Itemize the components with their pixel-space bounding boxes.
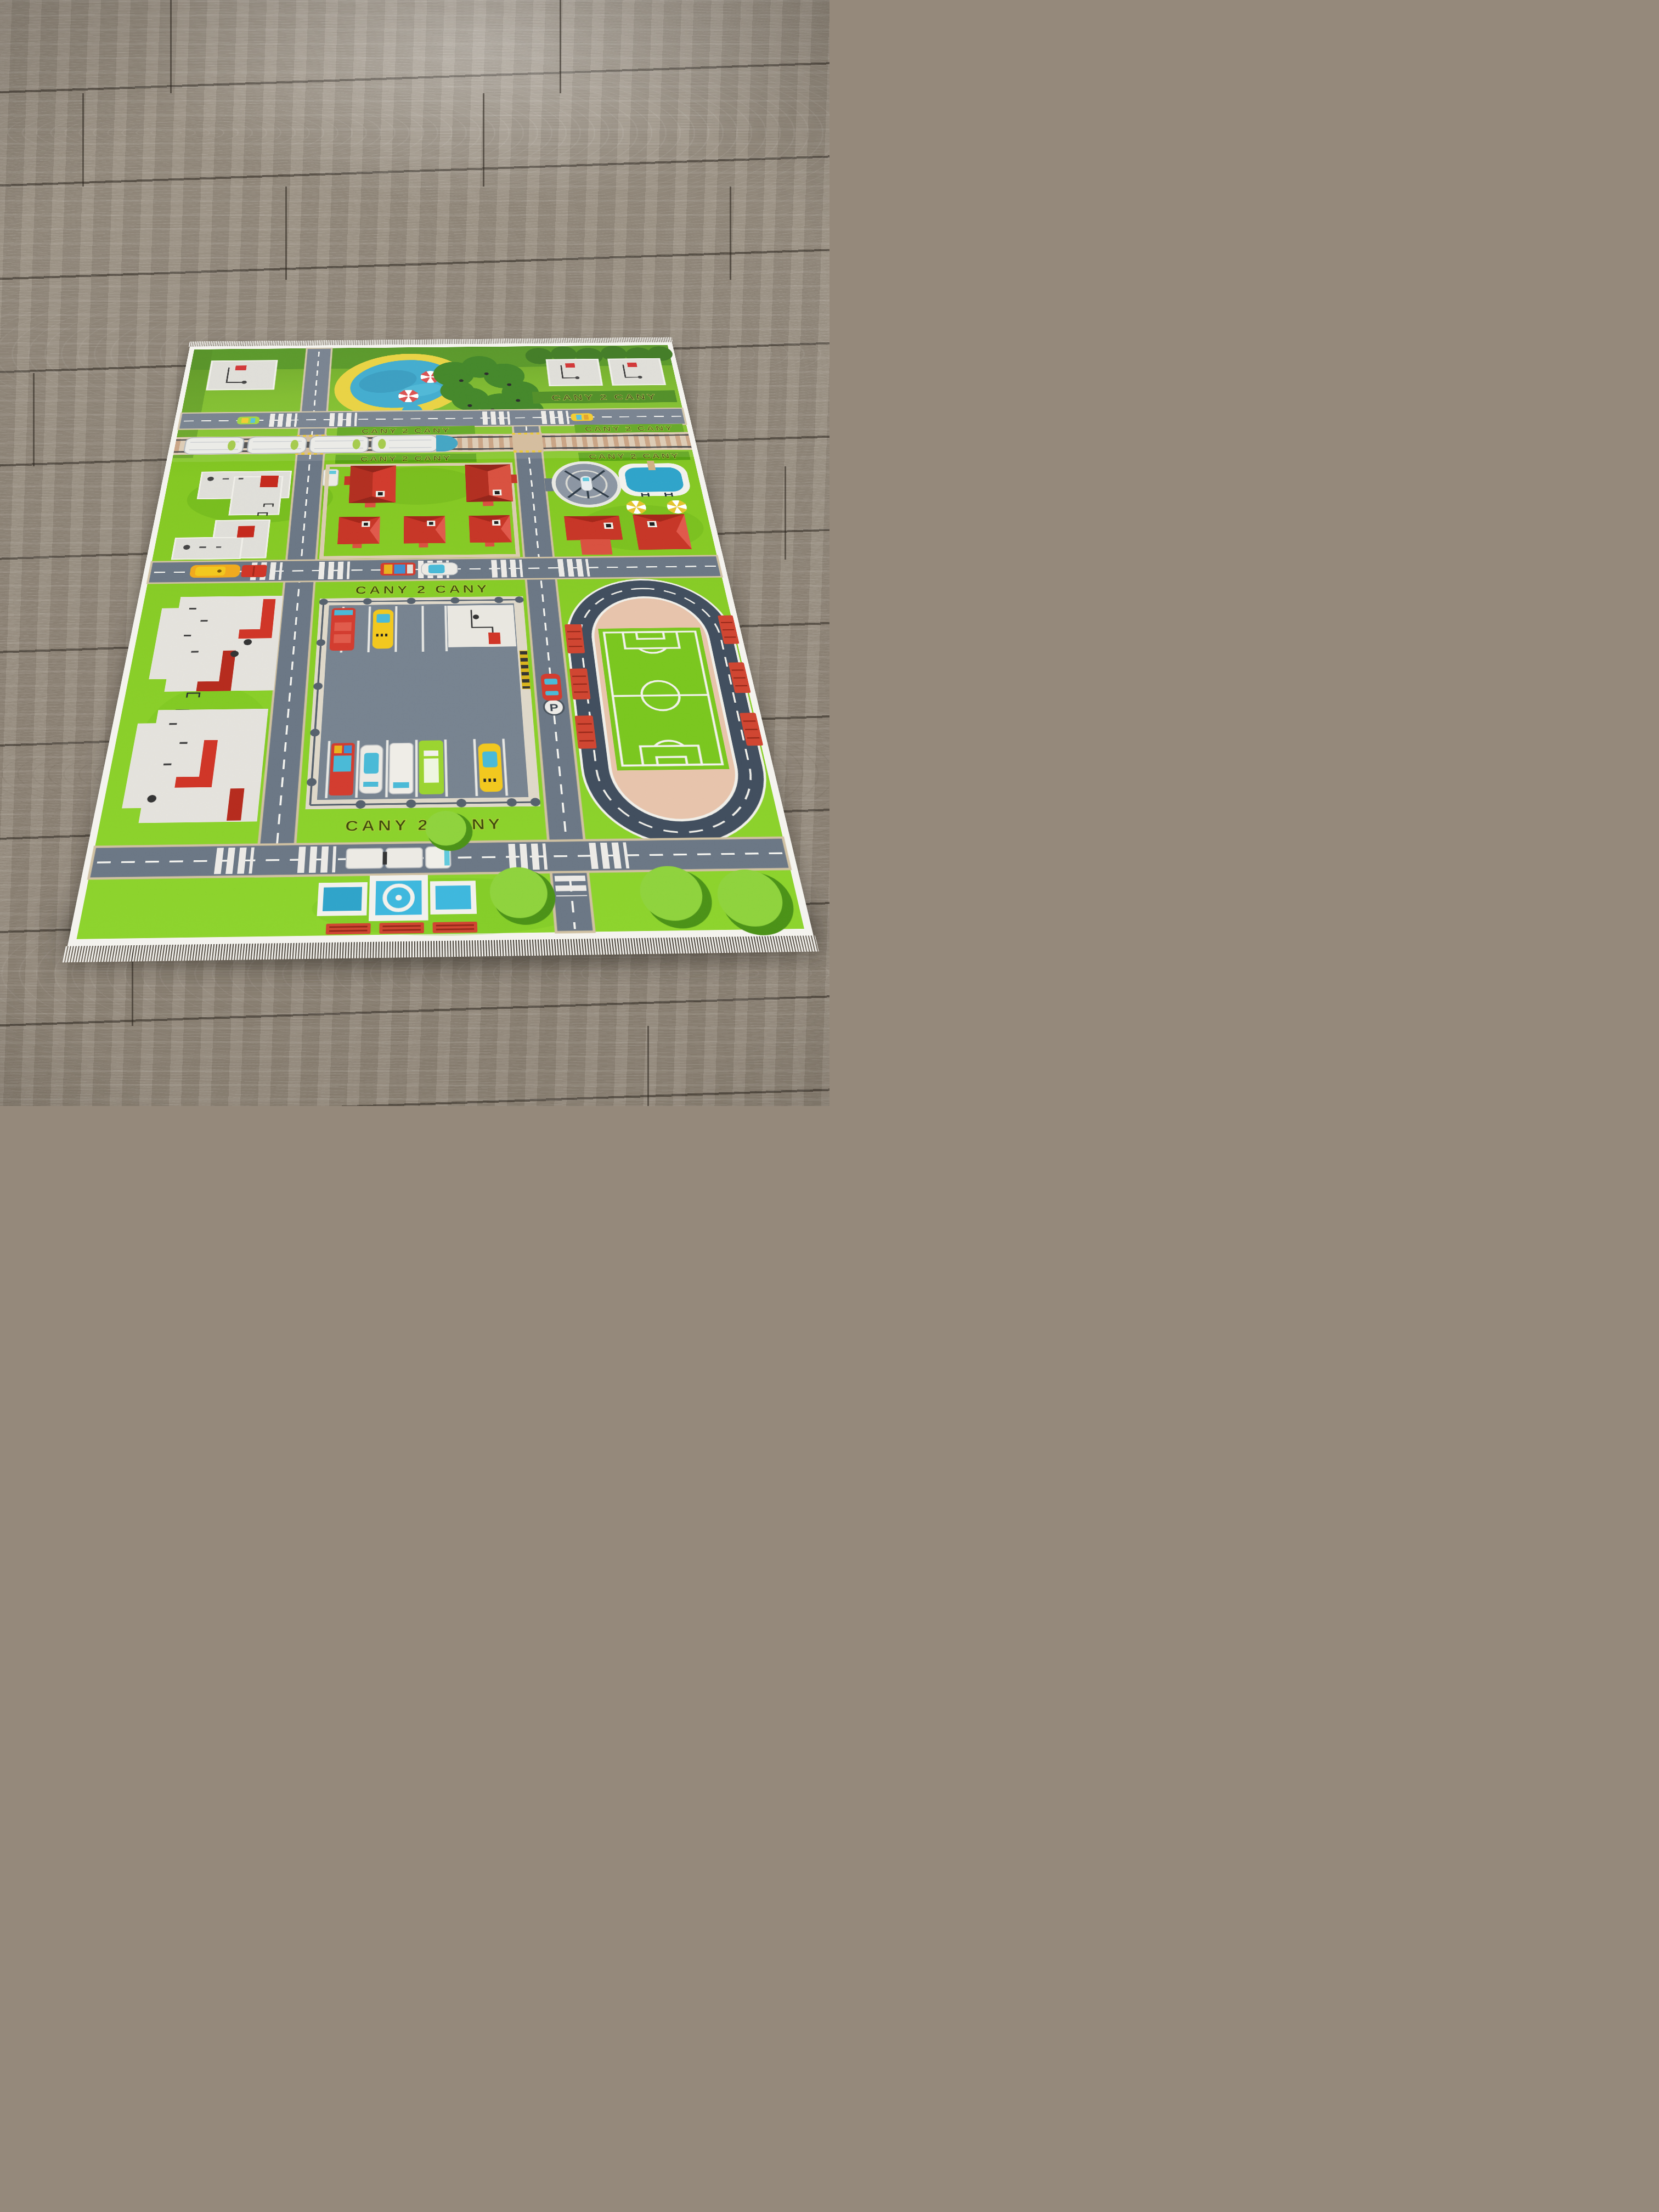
photo-vignette xyxy=(0,0,830,1106)
photo-scene: { "scene": { "description": "Photograph … xyxy=(0,0,830,1106)
